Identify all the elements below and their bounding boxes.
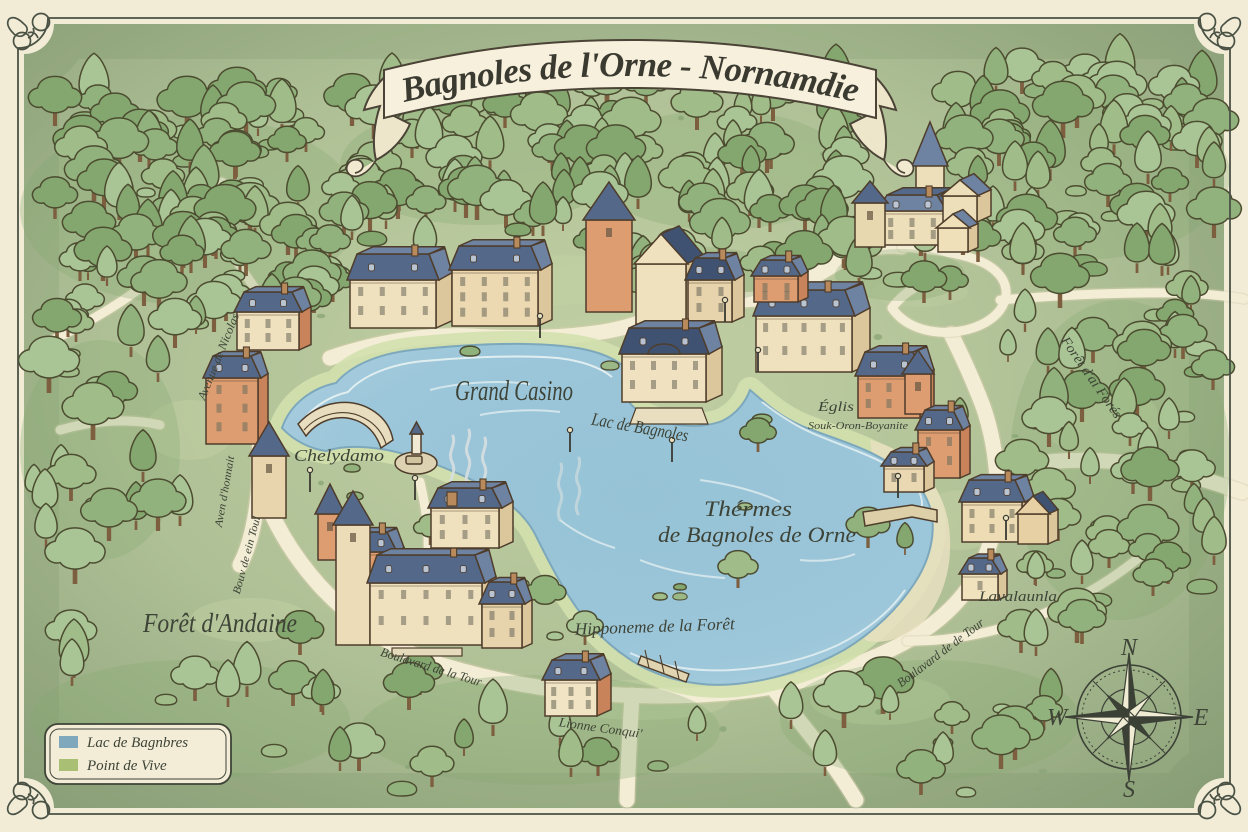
svg-text:W: W <box>1047 705 1069 731</box>
svg-text:Chelydamo: Chelydamo <box>294 446 384 465</box>
svg-text:Forêt d'Andaine: Forêt d'Andaine <box>142 608 297 638</box>
svg-text:Point de Vive: Point de Vive <box>86 758 167 774</box>
svg-text:E: E <box>1193 705 1209 731</box>
svg-text:Grand Casino: Grand Casino <box>455 376 573 407</box>
svg-text:de Bagnoles de Orne: de Bagnoles de Orne <box>658 522 856 547</box>
svg-text:Églis: Églis <box>817 398 855 415</box>
svg-text:Souk-Oron-Boyanite: Souk-Oron-Boyanite <box>808 420 908 432</box>
svg-text:S: S <box>1123 777 1135 803</box>
svg-text:Thérmes: Thérmes <box>704 496 792 521</box>
svg-text:Lac de Bagnbres: Lac de Bagnbres <box>86 735 188 751</box>
svg-text:N: N <box>1120 635 1139 661</box>
svg-text:Lavalaunla: Lavalaunla <box>978 589 1057 605</box>
